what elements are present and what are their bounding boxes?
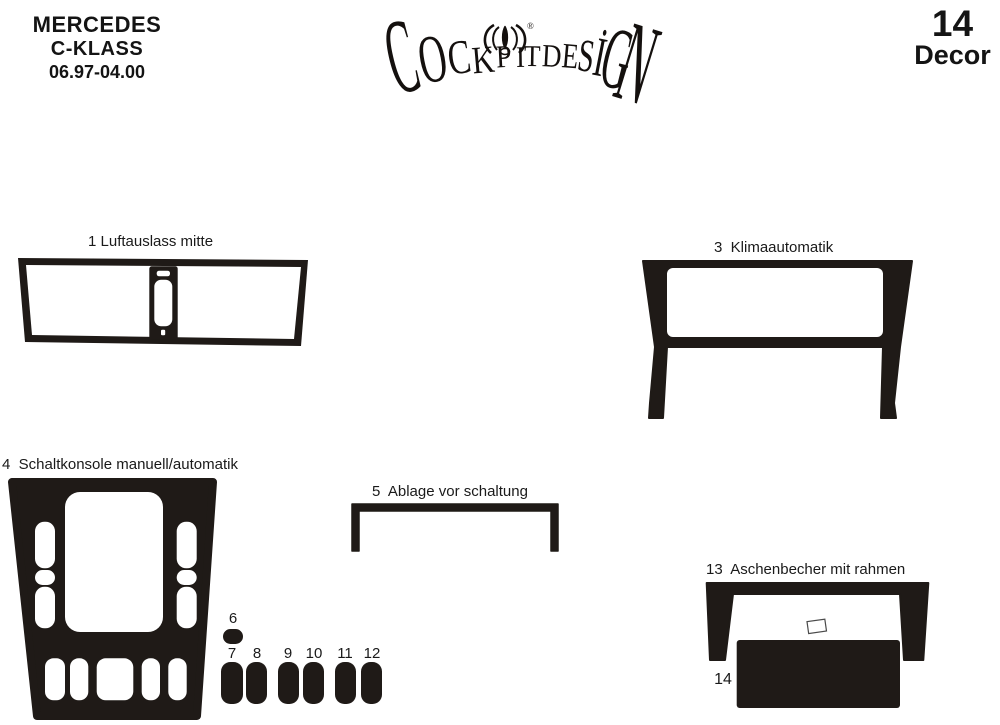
part-3-label: 3 Klimaautomatik [714,239,833,256]
part-11-piece [335,662,356,704]
brand-model: C-KLASS [14,37,180,61]
part-4-shift-console-panel [8,476,223,724]
vehicle-model-block: MERCEDES C-KLASS 06.97-04.00 [14,12,180,83]
part-13-label: 13 Aschenbecher mit rahmen [706,561,905,578]
part-1-air-vent-frame [14,252,314,352]
catalog-page: MERCEDES C-KLASS 06.97-04.00 14 Decor ® … [0,0,1000,725]
logo-letter: T [524,41,541,72]
part-13-ashtray-frame [700,578,935,713]
part-5-storage-tray-trim [348,500,563,556]
part-2-vent-insert [149,266,177,339]
part-4-label: 4 Schaltkonsole manuell/automatik [2,456,238,473]
part-13-clip-mark [807,619,826,633]
decor-count-label: Decor [905,42,1000,68]
logo-letter: K [470,39,496,80]
part-8-piece [246,662,267,704]
part-14-ashtray-lid [737,640,900,708]
registered-mark: ® [527,21,534,31]
part-7-piece [221,662,243,704]
part-5-label: 5 Ablage vor schaltung [372,483,528,500]
part-11-label: 11 [330,645,360,662]
brand-make: MERCEDES [14,12,180,37]
decor-count: 14 [905,6,1000,42]
logo-letter: P [495,42,512,75]
part-10-label: 10 [299,645,329,662]
part-3-climate-control-panel [638,255,918,423]
part-1-label: 1 Luftauslass mitte [88,233,213,250]
part-12-label: 12 [357,645,387,662]
part-9-piece [278,662,299,704]
decor-count-block: 14 Decor [905,6,1000,68]
logo-letter: D [541,40,562,73]
part-8-label: 8 [242,645,272,662]
brand-years: 06.97-04.00 [14,61,180,83]
part-12-piece [361,662,382,704]
part-10-piece [303,662,324,704]
part-6-piece [223,629,243,644]
